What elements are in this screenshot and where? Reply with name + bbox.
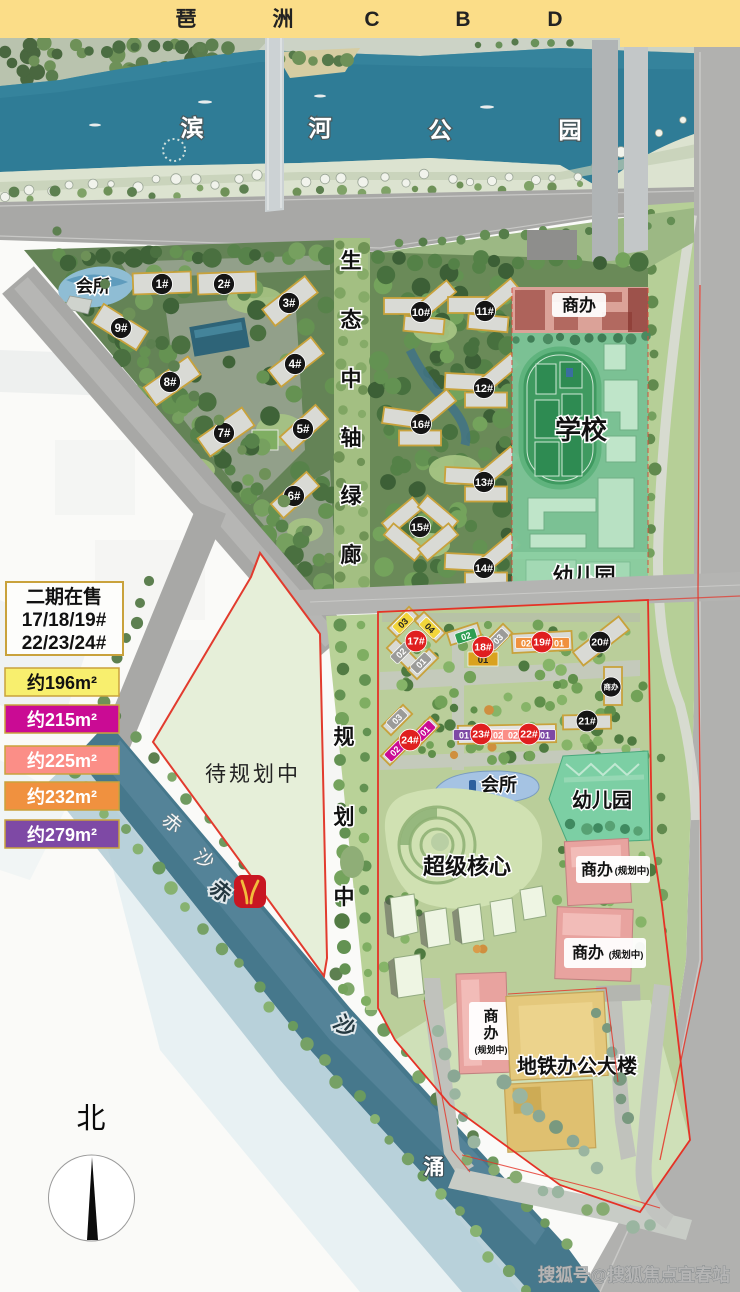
svg-text:10#: 10# <box>412 307 430 319</box>
svg-text:01: 01 <box>540 730 550 740</box>
svg-text:22/23/24#: 22/23/24# <box>22 633 107 654</box>
svg-text:21#: 21# <box>578 716 596 728</box>
svg-text:8#: 8# <box>164 377 177 389</box>
svg-text:中: 中 <box>341 368 362 391</box>
svg-text:15#: 15# <box>411 522 429 534</box>
svg-text:17/18/19#: 17/18/19# <box>22 610 107 631</box>
svg-text:02: 02 <box>493 730 503 740</box>
svg-text:B: B <box>455 8 470 31</box>
svg-text:商: 商 <box>483 1007 498 1025</box>
svg-text:会所: 会所 <box>481 774 517 795</box>
svg-text:商办: 商办 <box>604 682 619 692</box>
svg-text:16#: 16# <box>412 419 430 431</box>
svg-text:11#: 11# <box>476 306 494 318</box>
svg-text:搜狐号@搜狐焦点宜春站: 搜狐号@搜狐焦点宜春站 <box>538 1265 731 1285</box>
svg-text:23#: 23# <box>472 729 490 741</box>
svg-text:约215m²: 约215m² <box>27 709 97 730</box>
svg-text:1#: 1# <box>156 279 169 291</box>
svg-text:约232m²: 约232m² <box>27 786 97 807</box>
svg-text:(规划中): (规划中) <box>475 1044 508 1055</box>
svg-text:琶: 琶 <box>176 8 197 31</box>
svg-text:公: 公 <box>429 117 452 143</box>
svg-text:C: C <box>364 8 379 31</box>
svg-text:D: D <box>547 8 562 31</box>
svg-text:绿: 绿 <box>341 484 363 508</box>
svg-text:河: 河 <box>309 115 332 141</box>
svg-text:约279m²: 约279m² <box>27 824 97 845</box>
svg-text:(规划中): (规划中) <box>609 949 644 961</box>
svg-text:4#: 4# <box>289 359 302 371</box>
svg-text:2#: 2# <box>218 279 231 291</box>
svg-text:13#: 13# <box>475 477 493 489</box>
svg-text:商办: 商办 <box>562 295 596 315</box>
svg-text:3#: 3# <box>283 298 296 310</box>
svg-text:01: 01 <box>554 638 564 648</box>
svg-text:商办: 商办 <box>572 943 604 962</box>
svg-text:生: 生 <box>341 249 362 273</box>
svg-text:9#: 9# <box>115 323 128 335</box>
svg-text:划: 划 <box>334 806 355 829</box>
svg-text:幼儿园: 幼儿园 <box>572 788 632 812</box>
svg-text:办: 办 <box>483 1024 498 1042</box>
svg-text:12#: 12# <box>475 383 493 395</box>
svg-text:14#: 14# <box>475 563 493 575</box>
svg-text:01: 01 <box>459 730 469 740</box>
svg-text:(规划中): (规划中) <box>615 865 650 877</box>
svg-text:17#: 17# <box>407 636 425 648</box>
svg-text:19#: 19# <box>533 637 551 649</box>
svg-text:7#: 7# <box>218 428 231 440</box>
svg-text:02: 02 <box>508 730 518 740</box>
svg-text:24#: 24# <box>401 735 419 747</box>
svg-text:22#: 22# <box>520 729 538 741</box>
svg-text:超级核心: 超级核心 <box>423 854 511 879</box>
svg-text:滨: 滨 <box>181 115 204 141</box>
svg-text:洲: 洲 <box>273 8 294 31</box>
svg-text:北: 北 <box>76 1103 105 1135</box>
svg-text:园: 园 <box>559 117 582 143</box>
svg-text:规: 规 <box>334 726 355 749</box>
svg-text:18#: 18# <box>474 642 492 654</box>
svg-text:二期在售: 二期在售 <box>26 585 102 608</box>
svg-text:态: 态 <box>341 308 362 332</box>
svg-text:20#: 20# <box>591 637 609 649</box>
svg-text:涌: 涌 <box>424 1156 445 1179</box>
svg-text:廊: 廊 <box>341 543 362 567</box>
svg-text:5#: 5# <box>297 424 310 436</box>
svg-text:轴: 轴 <box>341 426 362 450</box>
svg-text:02: 02 <box>521 638 531 648</box>
svg-text:约196m²: 约196m² <box>27 672 97 693</box>
svg-text:中: 中 <box>334 886 355 909</box>
svg-text:约225m²: 约225m² <box>27 750 97 771</box>
svg-text:商办: 商办 <box>581 860 613 879</box>
svg-text:学校: 学校 <box>555 415 608 445</box>
svg-text:待规划中: 待规划中 <box>205 763 301 786</box>
